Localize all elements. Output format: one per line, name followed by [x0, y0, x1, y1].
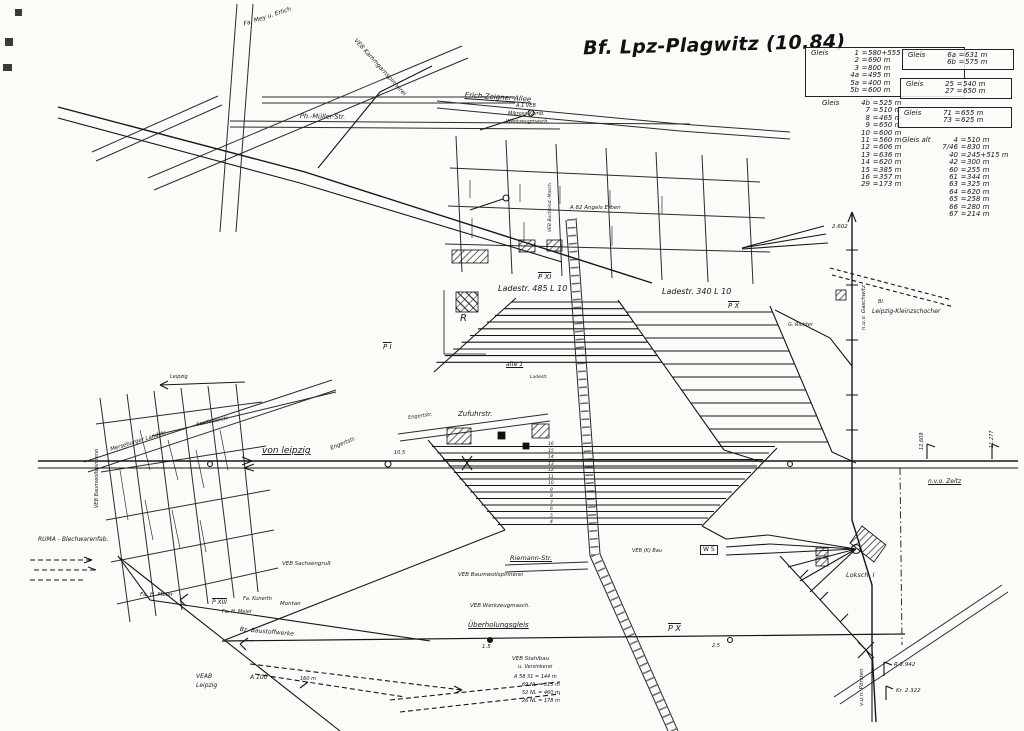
km-label: Kr. 2.322	[896, 689, 921, 695]
gleis-row: 73=625 m	[904, 117, 1006, 124]
track-number: 9	[550, 489, 553, 494]
factory-label: VEB Werkzeugmasch.	[470, 604, 530, 610]
length-list-row: A 58 31 = 144 m	[514, 675, 557, 680]
gleis-length-box-3: Gleis25=540 m27=650 m	[900, 78, 1012, 99]
km-label: 11.277	[990, 431, 995, 449]
ladestrasse-485-label: Ladestr. 485 L 10	[498, 285, 567, 293]
km-label: 2.602	[832, 225, 848, 231]
post-label-p1: P I	[383, 344, 392, 351]
scan-artifacts	[3, 9, 22, 71]
post-label-p13: P XIII	[212, 600, 227, 606]
street-label-zufuhrstr: Zufuhrstr.	[458, 411, 492, 418]
track-number: 12	[548, 469, 554, 474]
track-number: 11	[548, 476, 554, 481]
block-siding-marks	[120, 180, 662, 552]
direction-label-poersten: v.u.n. Pörsten	[860, 668, 866, 706]
factory-label: VEB Baumwollspinnerei	[95, 449, 100, 508]
km-label: 1.5	[482, 645, 491, 651]
ladestrasse-small-label: Ladestr.	[530, 376, 548, 381]
gleis-row: Gleis25=540 m	[906, 81, 1006, 88]
factory-label-ruma: RUMA - Blechwarenfab.	[38, 537, 108, 543]
factory-label: VEB Buchbind.-Masch.	[549, 182, 554, 232]
km-label: 2.5	[712, 644, 720, 649]
post-label-p10: P X	[728, 303, 739, 310]
gleis-row: 29=173 m	[822, 181, 901, 188]
km-label: 12.609	[920, 433, 925, 451]
direction-label-leipzig: Leipzig	[170, 375, 188, 380]
loco-shed-label: Loksch. I	[846, 572, 875, 579]
track-number: 5	[550, 515, 553, 520]
factory-label: Fa. H. Meier	[222, 610, 252, 615]
switch-label-w5: W 5	[700, 545, 718, 555]
track-diagram-page: Bf. Lpz-Plagwitz (10.84) Gleis1=580+555 …	[0, 0, 1024, 731]
length-list-row: 69 NL = 315 m	[522, 683, 560, 688]
ladestrasse-340-label: Ladestr. 340 L 10	[662, 288, 731, 296]
track-number: 8	[550, 495, 553, 500]
factory-label: VEB Stahlbau	[512, 657, 549, 663]
gleis-row: Gleis6a=631 m	[908, 52, 1008, 59]
level-crossing-band	[571, 219, 673, 731]
station-label-kleinzschocher: Leipzig-Kleinzschocher	[872, 309, 940, 315]
block-post-label: Bl.	[878, 300, 884, 305]
gleis-row: 6b=575 m	[908, 59, 1008, 66]
length-list-row: 26 NL = 178 m	[522, 699, 560, 704]
track-number: 10	[548, 482, 554, 487]
gleis-length-list-1: Gleis4b=525 m7=510 m8=465 m9=650 m10=600…	[822, 100, 901, 189]
gleis-row: 67=214 m	[902, 211, 1009, 218]
factory-label: Fa. Kunerth	[243, 597, 272, 602]
factory-label: u. Verzinkerei	[518, 665, 552, 670]
factory-label: VEB (K) Bau	[632, 549, 662, 554]
post-label-p11: P XI	[538, 274, 551, 281]
factory-label: Fa. H. Meier	[140, 593, 173, 599]
siding-label-a100: A 100	[250, 675, 267, 681]
post-label-p10-south: P X	[668, 625, 681, 633]
gleis-length-list-2: Gleis alt4=510 m7/46=830 m40=245+515 m42…	[902, 137, 1009, 218]
street-label-ph-mueller-str: Ph.-Müller-Str.	[300, 113, 345, 120]
factory-label: VEB Sachsengruß	[282, 562, 331, 568]
gleis-length-box-4: Gleis71=655 m73=625 m	[898, 107, 1012, 128]
gleis-row: 27=650 m	[906, 88, 1006, 95]
track-number: 4	[550, 521, 553, 526]
length-label: 160 m	[300, 677, 316, 682]
track-label-alte-1: alte 1	[506, 362, 523, 368]
factory-label: A.1 VEB	[516, 104, 536, 109]
track-number: 13	[548, 463, 554, 468]
direction-label-von-leipzig: von leipzig	[262, 447, 311, 456]
track-number: 7	[550, 502, 553, 507]
factory-label: Werkzeugmasch.	[506, 120, 549, 125]
street-label-riemann: Riemann-Str.	[510, 555, 552, 562]
km-label: R 2.942	[894, 663, 915, 669]
track-number: 16	[548, 443, 554, 448]
factory-label: Montan	[280, 602, 301, 608]
factory-label-veab: VEAB	[196, 674, 212, 680]
factory-label-veab-2: Leipzig	[196, 683, 217, 689]
track-number: 6	[550, 508, 553, 513]
track-label-ueberholungsgleis: Überholungsgleis	[468, 622, 529, 629]
direction-label-gaschwitz: n.u.v. Gaschwitz	[862, 285, 868, 330]
factory-label: Mikrosa Komb.	[508, 112, 545, 117]
km-label: 10.5	[394, 451, 405, 456]
ramp-label: R	[460, 314, 467, 324]
factory-label: VEB Baumwollspinnerei	[458, 573, 523, 579]
track-number: 15	[548, 450, 554, 455]
direction-label-zeitz: n.v.o. Zeitz	[928, 479, 961, 485]
factory-label: A 82 Angels Erben	[570, 206, 621, 212]
gleis-length-box-2: Gleis6a=631 m6b=575 m	[902, 49, 1014, 70]
length-list-row: 52 NL = 460 m	[522, 691, 560, 696]
track-number: 14	[548, 456, 554, 461]
factory-label: G. Richter	[788, 323, 813, 328]
